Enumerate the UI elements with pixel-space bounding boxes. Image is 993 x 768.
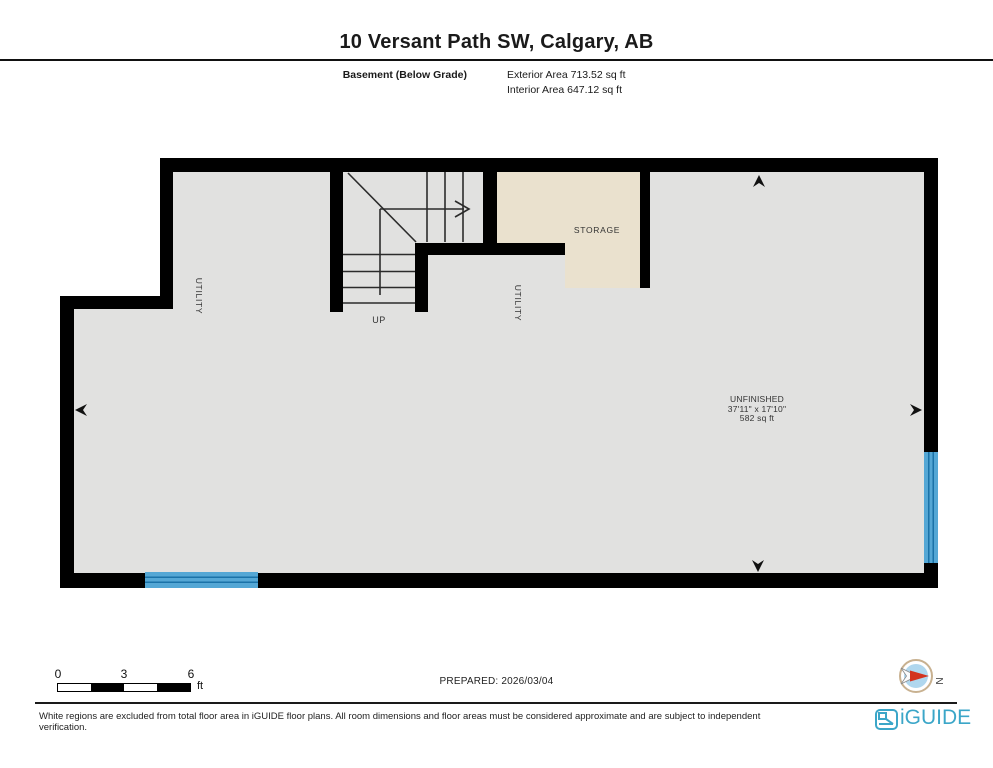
wall-top [160,158,938,172]
iguide-logo: iGUIDE [875,706,971,730]
page-title: 10 Versant Path SW, Calgary, AB [0,31,993,54]
title-divider [0,59,993,61]
exterior-area: Exterior Area 713.52 sq ft [507,69,625,81]
prepared-date: PREPARED: 2026/03/04 [0,676,993,687]
stairs-up-label: UP [364,315,394,325]
wall-stair-left [330,172,343,312]
room-label-utility-left: UTILITY [192,266,204,326]
floor-name: Basement (Below Grade) [343,69,467,81]
interior-area: Interior Area 647.12 sq ft [507,84,622,96]
iguide-logo-icon [875,709,898,730]
wall-storage-bottom [415,243,565,255]
storage-room-fill-lower [565,243,640,288]
wall-storage-right [640,172,650,288]
wall-left-lower [60,296,74,587]
room-label-unfinished: UNFINISHED 37'11" x 17'10" 582 sq ft [687,395,827,424]
window-right [924,452,938,563]
wall-storage-left [483,172,497,243]
disclaimer-text: White regions are excluded from total fl… [39,711,799,733]
wall-left-upper [160,158,173,309]
footer-divider [35,702,957,704]
iguide-logo-text: iGUIDE [900,706,971,730]
room-label-utility-right: UTILITY [511,273,523,333]
room-label-storage: STORAGE [557,225,637,237]
unfinished-area: 582 sq ft [687,414,827,424]
wall-step [60,296,173,309]
floorplan-page: 10 Versant Path SW, Calgary, AB Basement… [0,0,993,768]
floor-area-left [74,309,173,573]
window-bottom [145,572,258,588]
